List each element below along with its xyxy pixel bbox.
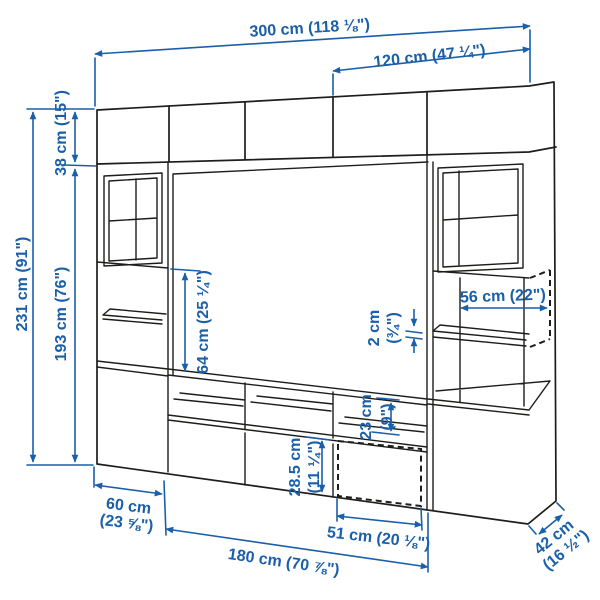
dim-door-width-label: 51 cm (20 ⅛") — [326, 524, 431, 553]
dim-tv-space-height: 64 cm (25 ¼") — [171, 269, 212, 374]
dim-inner-width-label: 56 cm (22") — [460, 287, 546, 307]
dim-shelf-thickness-label: 2 cm — [366, 310, 383, 346]
dim-top-cabinet-height: 38 cm (15") — [53, 90, 75, 176]
dimension-arrow — [95, 485, 162, 494]
dim-drawer-height-label: 28.5 cm — [287, 438, 304, 497]
dim-total-height-label: 231 cm (91") — [14, 237, 31, 332]
dim-compartment-height-inches-label: (9") — [379, 403, 396, 430]
dimension-diagram: 300 cm (118 ⅛") 120 cm (47 ¼") 231 cm (9… — [0, 0, 600, 600]
top-cabinets — [97, 93, 556, 164]
dim-door-width: 51 cm (20 ⅛") — [326, 499, 431, 553]
dashed-door — [338, 441, 421, 506]
extension-line — [307, 437, 330, 440]
dim-side-unit-width: 60 cm (23 ⅝") — [94, 467, 162, 535]
product-image: 300 cm (118 ⅛") 120 cm (47 ¼") 231 cm (9… — [0, 0, 600, 600]
dim-base-height: 193 cm (76") — [53, 169, 75, 462]
dim-base-height-label: 193 cm (76") — [53, 267, 70, 362]
dim-bench-width-label: 180 cm (70 ⅞") — [227, 546, 341, 579]
dim-top-cabinet-height-label: 38 cm (15") — [53, 90, 70, 176]
extension-line — [406, 331, 422, 339]
dim-depth: 42 cm (16 ½") — [529, 503, 592, 574]
dim-compartment-height-label: 23 cm — [358, 394, 375, 439]
dimension-arrow — [337, 516, 422, 525]
extension-line — [95, 30, 530, 106]
dim-section-width-label: 120 cm (47 ¼") — [373, 42, 487, 71]
dim-drawer-height-inches-label: (11 ¼") — [306, 441, 323, 494]
dim-shelf-thickness-inches-label: (¾") — [385, 312, 402, 344]
dim-shelf-thickness: 2 cm (¾") — [366, 309, 422, 353]
dim-inner-width: 56 cm (22") — [460, 287, 547, 308]
dim-drawer-height: 28.5 cm (11 ¼") — [287, 437, 330, 496]
dim-tv-space-height-label: 64 cm (25 ¼") — [195, 270, 212, 374]
left-tower — [97, 173, 168, 376]
